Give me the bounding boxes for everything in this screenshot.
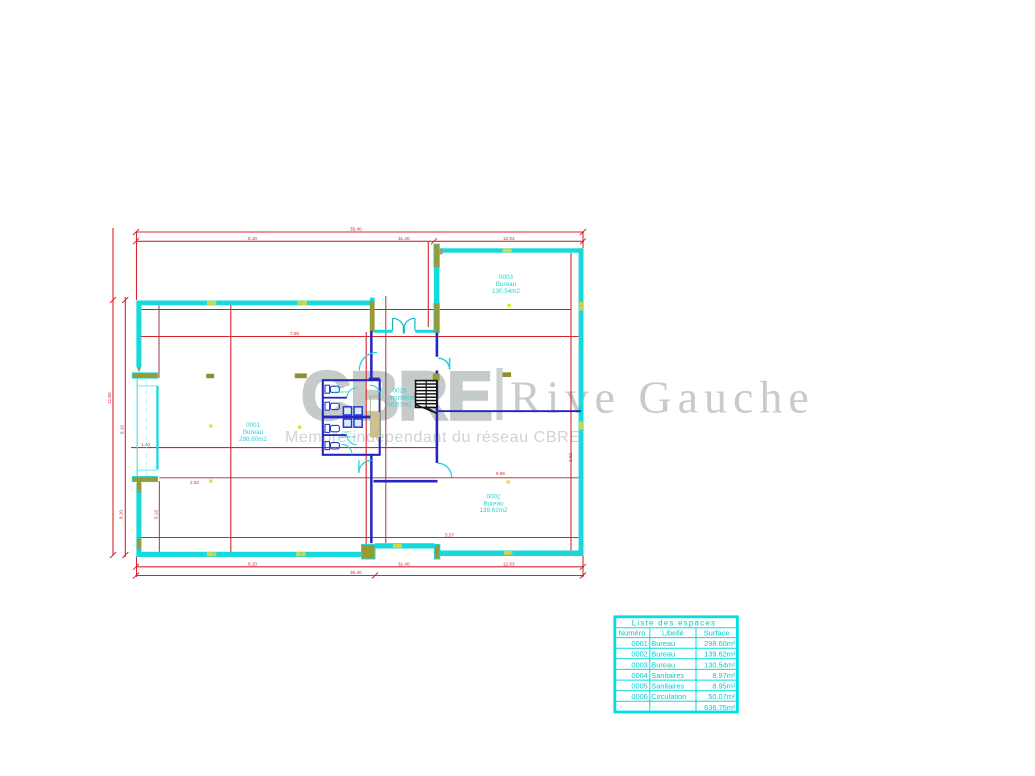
svg-text:Circulation: Circulation bbox=[385, 395, 415, 402]
svg-text:0006: 0006 bbox=[631, 692, 647, 701]
svg-text:0003: 0003 bbox=[631, 660, 647, 669]
svg-text:Sanitaires: Sanitaires bbox=[651, 682, 684, 691]
svg-text:Circulation: Circulation bbox=[651, 692, 686, 701]
svg-text:5.66: 5.66 bbox=[496, 471, 505, 476]
svg-text:Sanitaires: Sanitaires bbox=[338, 434, 356, 439]
svg-text:12.60: 12.60 bbox=[107, 392, 112, 404]
svg-text:2.62: 2.62 bbox=[190, 480, 199, 485]
svg-text:Bureau: Bureau bbox=[651, 660, 675, 669]
svg-text:8.10: 8.10 bbox=[119, 510, 124, 519]
svg-text:35.40: 35.40 bbox=[350, 570, 362, 575]
svg-text:0005: 0005 bbox=[631, 682, 647, 691]
svg-text:0026: 0026 bbox=[392, 388, 407, 395]
svg-text:35.40: 35.40 bbox=[350, 227, 362, 232]
svg-text:Surface: Surface bbox=[704, 629, 730, 638]
svg-text:Libellé: Libellé bbox=[662, 629, 684, 638]
svg-text:Rive Gauche: Rive Gauche bbox=[510, 372, 815, 423]
svg-text:130.54m2: 130.54m2 bbox=[492, 288, 521, 295]
svg-text:Bureau: Bureau bbox=[651, 639, 675, 648]
svg-text:7.56: 7.56 bbox=[290, 331, 299, 336]
svg-text:8.10: 8.10 bbox=[120, 425, 125, 434]
svg-text:31.40: 31.40 bbox=[398, 236, 410, 241]
svg-text:139.62m²: 139.62m² bbox=[704, 650, 736, 659]
svg-text:2.02: 2.02 bbox=[568, 453, 573, 462]
svg-text:5.57: 5.57 bbox=[445, 533, 454, 538]
svg-text:8.95m²: 8.95m² bbox=[712, 682, 736, 691]
svg-text:298.60m2: 298.60m2 bbox=[239, 436, 268, 443]
svg-text:298.60m²: 298.60m² bbox=[704, 639, 736, 648]
svg-text:12.63: 12.63 bbox=[503, 236, 515, 241]
svg-text:0001: 0001 bbox=[246, 422, 261, 429]
svg-text:8.97m²: 8.97m² bbox=[712, 671, 736, 680]
svg-text:139.62m2: 139.62m2 bbox=[479, 507, 508, 514]
svg-text:5.13: 5.13 bbox=[154, 510, 159, 519]
svg-text:8.10: 8.10 bbox=[248, 561, 257, 566]
svg-text:Bureau: Bureau bbox=[496, 281, 517, 288]
svg-text:Bureau: Bureau bbox=[651, 650, 675, 659]
svg-text:50.07m²: 50.07m² bbox=[708, 692, 736, 701]
svg-text:130.54m²: 130.54m² bbox=[704, 660, 736, 669]
svg-text:Bureau: Bureau bbox=[243, 429, 264, 436]
svg-text:50.07m2: 50.07m2 bbox=[387, 402, 412, 409]
svg-text:0004: 0004 bbox=[631, 671, 647, 680]
svg-text:1.40: 1.40 bbox=[141, 442, 150, 447]
svg-text:Sanitaires: Sanitaires bbox=[651, 671, 684, 680]
svg-text:31.40: 31.40 bbox=[398, 561, 410, 566]
svg-text:12.63: 12.63 bbox=[503, 561, 515, 566]
svg-text:0002: 0002 bbox=[631, 650, 647, 659]
svg-text:Liste des espaces: Liste des espaces bbox=[632, 619, 716, 628]
svg-text:Numéro: Numéro bbox=[618, 629, 645, 638]
svg-text:636.75m²: 636.75m² bbox=[704, 703, 736, 712]
svg-text:0001: 0001 bbox=[631, 639, 647, 648]
svg-text:0003: 0003 bbox=[499, 274, 514, 281]
svg-text:8.10: 8.10 bbox=[248, 236, 257, 241]
svg-text:Sanitaires: Sanitaires bbox=[331, 389, 349, 394]
